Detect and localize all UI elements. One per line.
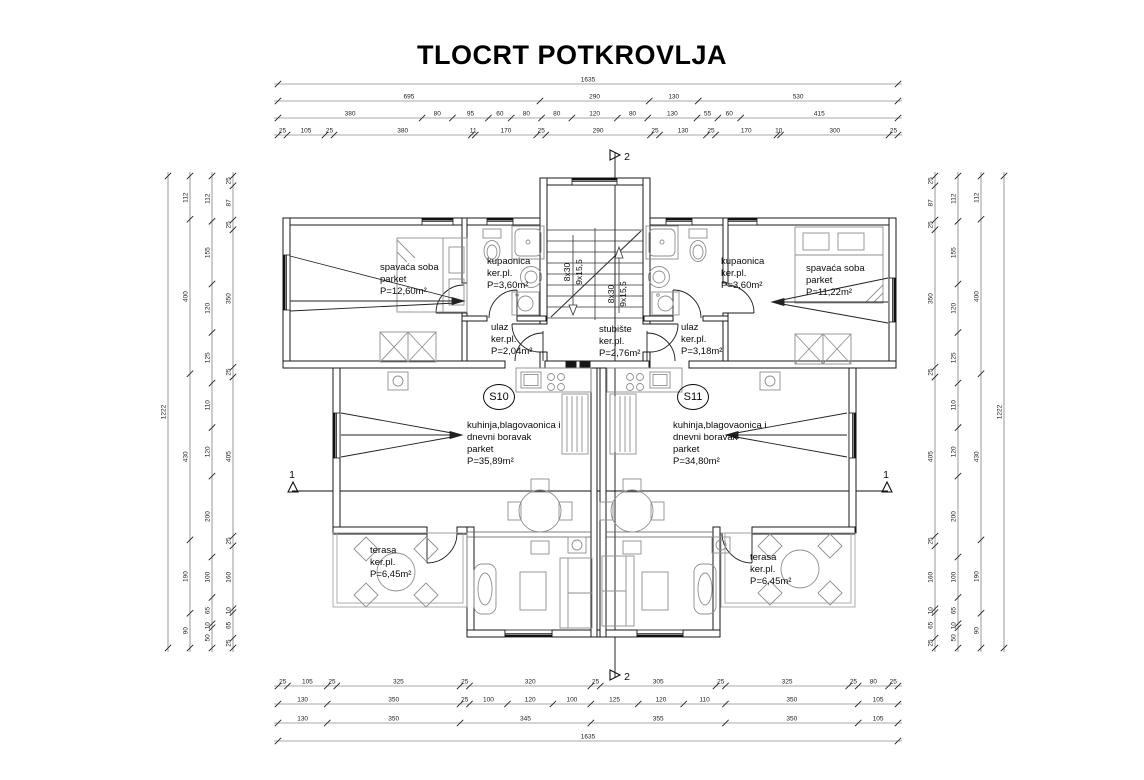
svg-text:50: 50 xyxy=(951,634,958,642)
svg-text:25: 25 xyxy=(928,221,935,229)
svg-text:530: 530 xyxy=(793,94,804,101)
section-lines xyxy=(288,150,892,680)
svg-text:345: 345 xyxy=(520,716,531,723)
window xyxy=(505,630,552,637)
ceiling-beams xyxy=(467,532,713,537)
svg-text:125: 125 xyxy=(205,352,212,363)
svg-text:25: 25 xyxy=(461,679,469,686)
svg-text:25: 25 xyxy=(707,128,715,135)
svg-text:350: 350 xyxy=(786,716,797,723)
svg-text:100: 100 xyxy=(566,697,577,704)
floor-plan-page: TLOCRT POTKROVLJA xyxy=(0,0,1144,780)
svg-text:100: 100 xyxy=(483,697,494,704)
floor-plan-drawing: 1635695290130530380809560808012080130556… xyxy=(0,0,1144,780)
svg-text:100: 100 xyxy=(951,571,958,582)
svg-text:105: 105 xyxy=(873,716,884,723)
svg-text:130: 130 xyxy=(297,716,308,723)
door xyxy=(673,290,701,318)
svg-text:200: 200 xyxy=(205,511,212,522)
svg-text:200: 200 xyxy=(951,511,958,522)
svg-text:25: 25 xyxy=(328,679,336,686)
svg-text:325: 325 xyxy=(782,679,793,686)
window xyxy=(889,278,896,322)
shower-left xyxy=(512,226,544,259)
svg-text:430: 430 xyxy=(974,451,981,462)
svg-text:120: 120 xyxy=(525,697,536,704)
svg-text:65: 65 xyxy=(951,607,958,615)
window xyxy=(666,218,692,225)
sofa-left xyxy=(560,558,592,628)
svg-text:130: 130 xyxy=(297,697,308,704)
section-1-marker-left xyxy=(288,482,298,492)
svg-text:105: 105 xyxy=(873,697,884,704)
toilet-right xyxy=(689,229,707,262)
svg-text:10: 10 xyxy=(226,607,233,615)
room-label-terrace-right: terasa ker.pl. P=6,45m² xyxy=(750,552,791,588)
window xyxy=(728,218,757,225)
kitchen-unit-right xyxy=(610,394,636,454)
svg-text:350: 350 xyxy=(388,716,399,723)
dining-set-right xyxy=(600,479,664,554)
svg-text:25: 25 xyxy=(928,537,935,545)
svg-text:350: 350 xyxy=(226,293,233,304)
svg-text:25: 25 xyxy=(890,128,898,135)
svg-text:10: 10 xyxy=(775,128,783,135)
dimension-chains: 1635695290130530380809560808012080130556… xyxy=(161,77,1008,745)
room-label-bathroom-right: kupaonica ker.pl. P=3,60m² xyxy=(721,256,764,292)
stair-run-label: 9x15,5 xyxy=(574,259,584,285)
roof-slope-arrow xyxy=(341,413,462,457)
stair-run-label: 8x30 xyxy=(606,285,616,304)
svg-text:25: 25 xyxy=(651,128,659,135)
svg-text:25: 25 xyxy=(717,679,725,686)
svg-text:120: 120 xyxy=(951,302,958,313)
svg-text:112: 112 xyxy=(205,193,212,204)
svg-text:350: 350 xyxy=(928,293,935,304)
svg-text:25: 25 xyxy=(279,679,287,686)
svg-text:25: 25 xyxy=(226,537,233,545)
svg-text:105: 105 xyxy=(302,679,313,686)
svg-text:405: 405 xyxy=(928,451,935,462)
svg-text:95: 95 xyxy=(467,111,475,118)
room-label-living-right: kuhinja,blagovaonica i dnevni boravak pa… xyxy=(673,420,766,468)
svg-text:1635: 1635 xyxy=(581,734,596,741)
svg-text:50: 50 xyxy=(205,634,212,642)
sofa-right xyxy=(602,556,634,626)
svg-text:65: 65 xyxy=(226,621,233,629)
svg-text:160: 160 xyxy=(226,572,233,583)
svg-text:1222: 1222 xyxy=(161,404,168,419)
section-label: 1 xyxy=(289,469,295,481)
svg-text:120: 120 xyxy=(589,111,600,118)
svg-text:25: 25 xyxy=(890,679,898,686)
svg-text:695: 695 xyxy=(404,94,415,101)
svg-text:430: 430 xyxy=(183,451,190,462)
door xyxy=(489,290,517,318)
kitchen-counter-right xyxy=(607,368,682,392)
window xyxy=(487,218,513,225)
svg-text:190: 190 xyxy=(974,571,981,582)
svg-text:10: 10 xyxy=(951,622,958,630)
section-label: 2 xyxy=(624,151,630,163)
svg-text:55: 55 xyxy=(704,111,712,118)
svg-text:25: 25 xyxy=(226,639,233,647)
svg-text:130: 130 xyxy=(667,111,678,118)
svg-text:110: 110 xyxy=(205,400,212,411)
svg-text:90: 90 xyxy=(974,627,981,635)
svg-text:112: 112 xyxy=(974,192,981,203)
door xyxy=(650,324,678,352)
svg-text:400: 400 xyxy=(183,291,190,302)
svg-text:160: 160 xyxy=(928,572,935,583)
room-label-bedroom-right: spavaća soba parket P=11,22m² xyxy=(806,263,865,299)
svg-text:25: 25 xyxy=(538,128,546,135)
svg-text:110: 110 xyxy=(699,697,710,704)
svg-text:415: 415 xyxy=(814,111,825,118)
svg-text:25: 25 xyxy=(850,679,858,686)
svg-text:80: 80 xyxy=(553,111,561,118)
room-label-living-left: kuhinja,blagovaonica i dnevni boravak pa… xyxy=(467,420,560,468)
svg-text:355: 355 xyxy=(653,716,664,723)
stair-run-label: 8x30 xyxy=(562,263,572,282)
closet-right xyxy=(795,334,851,364)
section-label: 1 xyxy=(883,469,889,481)
svg-text:170: 170 xyxy=(741,128,752,135)
svg-text:350: 350 xyxy=(388,697,399,704)
door xyxy=(722,533,752,563)
svg-text:100: 100 xyxy=(205,571,212,582)
svg-text:80: 80 xyxy=(870,679,878,686)
room-label-entry-right: ulaz ker.pl. P=3,18m² xyxy=(681,322,722,358)
coffee-table-left xyxy=(520,572,546,610)
kitchen-unit-left xyxy=(562,394,588,454)
svg-text:90: 90 xyxy=(183,627,190,635)
svg-text:25: 25 xyxy=(461,697,469,704)
armchair-left xyxy=(474,564,496,614)
svg-text:325: 325 xyxy=(393,679,404,686)
svg-text:87: 87 xyxy=(226,199,233,207)
vent-box xyxy=(568,537,586,553)
svg-text:25: 25 xyxy=(226,368,233,376)
svg-text:65: 65 xyxy=(928,621,935,629)
svg-text:25: 25 xyxy=(928,177,935,185)
washing-machine-left xyxy=(512,292,539,315)
room-label-bedroom-left: spavaća soba parket P=12,60m² xyxy=(380,262,439,298)
kitchen-counter-left xyxy=(516,368,591,392)
svg-text:130: 130 xyxy=(678,128,689,135)
window xyxy=(333,413,340,458)
svg-text:130: 130 xyxy=(668,94,679,101)
room-label-terrace-left: terasa ker.pl. P=6,45m² xyxy=(370,545,411,581)
section-label: 2 xyxy=(624,671,630,683)
svg-text:190: 190 xyxy=(183,571,190,582)
svg-text:25: 25 xyxy=(279,128,287,135)
window xyxy=(572,178,617,185)
svg-text:300: 300 xyxy=(829,128,840,135)
door xyxy=(647,331,675,361)
svg-text:25: 25 xyxy=(928,639,935,647)
shower-right xyxy=(646,226,678,259)
window xyxy=(849,413,856,458)
svg-text:105: 105 xyxy=(301,128,312,135)
section-1-marker-right xyxy=(882,482,892,492)
svg-text:25: 25 xyxy=(226,177,233,185)
svg-text:380: 380 xyxy=(345,111,356,118)
coffee-table-right xyxy=(642,572,668,610)
stair-direction-arrow-down xyxy=(569,305,577,315)
vent-box xyxy=(388,372,408,390)
svg-text:80: 80 xyxy=(523,111,531,118)
svg-text:60: 60 xyxy=(496,111,504,118)
svg-text:1222: 1222 xyxy=(997,404,1004,419)
svg-text:80: 80 xyxy=(434,111,442,118)
window xyxy=(422,218,453,225)
svg-text:120: 120 xyxy=(951,446,958,457)
svg-text:170: 170 xyxy=(501,128,512,135)
svg-text:60: 60 xyxy=(726,111,734,118)
svg-text:80: 80 xyxy=(629,111,637,118)
room-label-bathroom-left: kupaonica ker.pl. P=3,60m² xyxy=(487,256,530,292)
svg-text:112: 112 xyxy=(951,193,958,204)
dining-set-left xyxy=(508,479,572,554)
svg-text:155: 155 xyxy=(205,247,212,258)
svg-text:120: 120 xyxy=(205,446,212,457)
svg-text:25: 25 xyxy=(928,368,935,376)
svg-text:120: 120 xyxy=(205,302,212,313)
svg-text:380: 380 xyxy=(397,128,408,135)
svg-text:87: 87 xyxy=(928,199,935,207)
door xyxy=(436,285,464,313)
svg-text:25: 25 xyxy=(326,128,334,135)
closet-left xyxy=(380,332,436,362)
svg-text:400: 400 xyxy=(974,291,981,302)
door xyxy=(427,533,457,563)
svg-text:290: 290 xyxy=(589,94,600,101)
svg-text:125: 125 xyxy=(951,352,958,363)
washing-machine-right xyxy=(652,292,679,315)
svg-text:25: 25 xyxy=(226,221,233,229)
room-label-staircase: stubište ker.pl. P=2,76m² xyxy=(599,324,640,360)
svg-text:11: 11 xyxy=(470,128,477,135)
svg-text:65: 65 xyxy=(205,607,212,615)
svg-text:110: 110 xyxy=(951,400,958,411)
stair-run-label: 9x15,5 xyxy=(618,281,628,307)
window xyxy=(637,630,683,637)
unit-badge-s11: S11 xyxy=(677,384,709,410)
room-label-entry-left: ulaz ker.pl. P=2,04m² xyxy=(491,322,532,358)
svg-text:290: 290 xyxy=(593,128,604,135)
unit-badge-s10: S10 xyxy=(483,384,515,410)
svg-text:10: 10 xyxy=(205,622,212,630)
svg-text:1635: 1635 xyxy=(581,77,596,84)
svg-text:155: 155 xyxy=(951,247,958,258)
svg-text:25: 25 xyxy=(592,679,600,686)
svg-text:305: 305 xyxy=(653,679,664,686)
svg-text:10: 10 xyxy=(928,607,935,615)
svg-text:320: 320 xyxy=(525,679,536,686)
svg-text:125: 125 xyxy=(609,697,620,704)
window xyxy=(283,255,290,310)
washbasin-right xyxy=(649,267,670,288)
svg-text:112: 112 xyxy=(183,192,190,203)
vent-box xyxy=(760,372,780,390)
svg-text:120: 120 xyxy=(656,697,667,704)
svg-text:405: 405 xyxy=(226,451,233,462)
svg-text:350: 350 xyxy=(786,697,797,704)
